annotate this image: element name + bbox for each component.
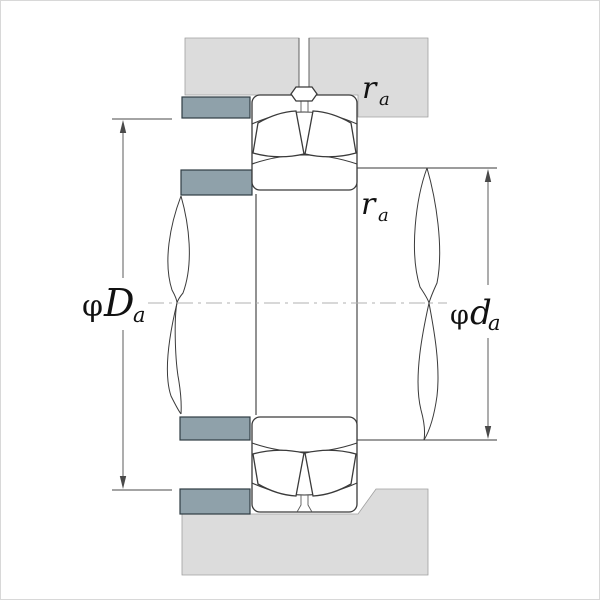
fillet-shaft-sub: a [378,205,389,226]
arrow-up-right [485,169,491,182]
arrow-up-left [120,120,126,133]
dimension-shaft-abutment: φ d a [450,169,501,439]
housing-shoulder-bottom [180,489,250,514]
shaft-break-right-b [424,168,440,440]
shaft-break-left-b [175,196,189,414]
fillet-shaft-r: r [361,187,377,222]
housing-shoulder-top [182,97,250,118]
fillet-housing-sub: a [379,89,390,110]
dimension-housing-abutment: φ D a [82,119,172,490]
letter-Da: D [103,281,134,325]
diagram-canvas: φ D a φ d a r a r a [0,0,600,600]
oil-supply-channel [299,38,309,88]
subscript-Da: a [133,303,146,327]
housing-top-left-block [185,38,299,95]
arrow-down-right [485,426,491,439]
shaft-break-right-a [414,168,429,440]
fillet-labels: r a r a [361,71,390,226]
phi-symbol-Da: φ [82,289,103,324]
abutment-shoulders [180,97,252,514]
bearing-mounting-diagram: φ D a φ d a r a r a [0,0,600,600]
arrow-down-left [120,476,126,489]
shaft-shoulder-spacer-bottom [180,417,250,440]
bearing-upper-half [252,87,357,190]
break-lines [167,168,439,440]
fillet-housing-r: r [362,71,378,106]
phi-symbol-da: φ [450,300,469,331]
shaft-shoulder-spacer-top [181,170,252,195]
subscript-da: a [488,311,501,335]
oil-groove-section [291,87,317,101]
bearing-lower-half [252,417,357,512]
